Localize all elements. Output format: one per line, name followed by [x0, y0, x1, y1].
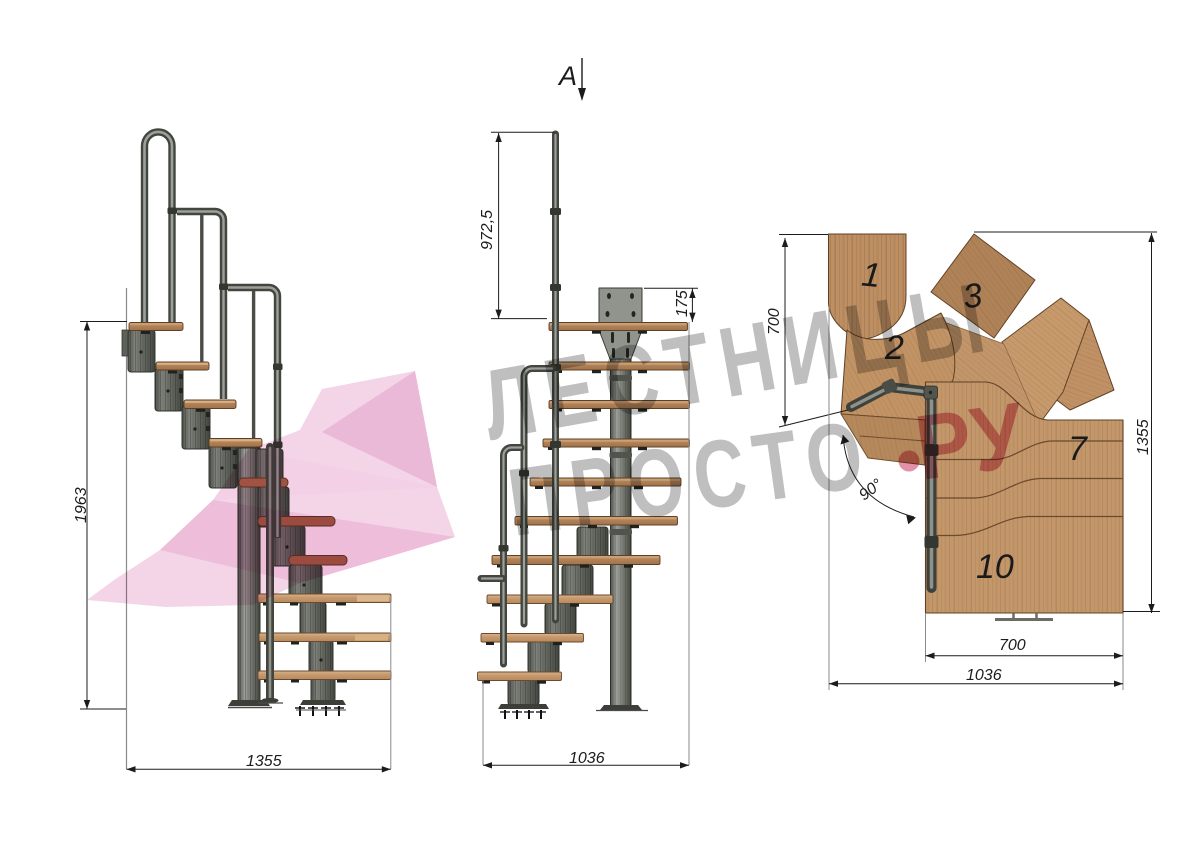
- svg-text:972,5: 972,5: [479, 210, 496, 250]
- svg-text:1036: 1036: [569, 750, 605, 767]
- svg-text:РУ: РУ: [909, 383, 1032, 500]
- svg-text:7: 7: [1068, 430, 1088, 468]
- svg-text:1355: 1355: [1135, 419, 1152, 455]
- svg-text:1355: 1355: [246, 753, 282, 770]
- svg-text:10: 10: [976, 548, 1014, 586]
- svg-text:700: 700: [999, 637, 1026, 654]
- svg-text:1963: 1963: [73, 487, 90, 523]
- svg-text:A: A: [557, 61, 577, 91]
- svg-text:1036: 1036: [966, 667, 1002, 684]
